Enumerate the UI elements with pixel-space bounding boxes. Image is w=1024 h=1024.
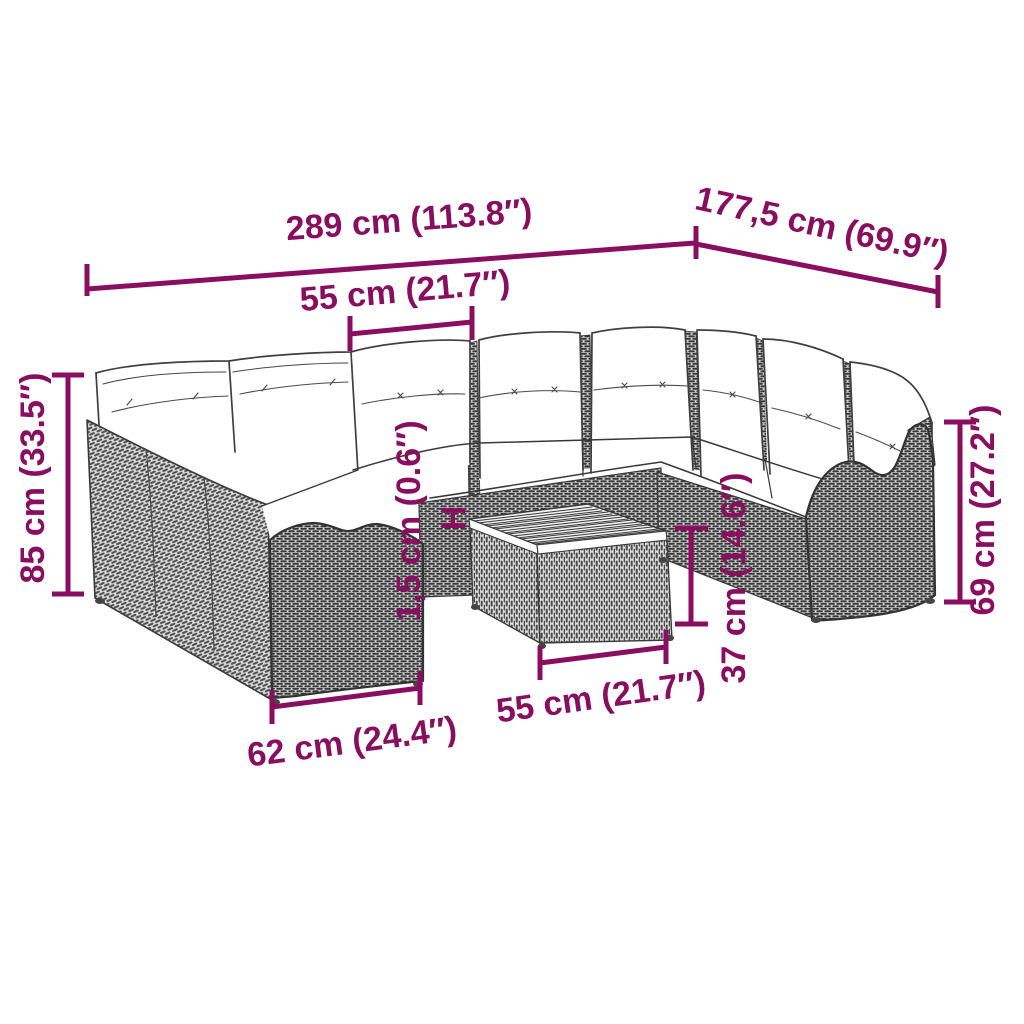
svg-text:H: H [435,506,473,531]
svg-text:37 cm (14.6″): 37 cm (14.6″) [715,473,753,684]
svg-text:1,5 cm (0.6″): 1,5 cm (0.6″) [390,420,428,622]
svg-text:69 cm (27.2″): 69 cm (27.2″) [964,405,1002,616]
svg-text:85 cm (33.5″): 85 cm (33.5″) [14,373,52,584]
